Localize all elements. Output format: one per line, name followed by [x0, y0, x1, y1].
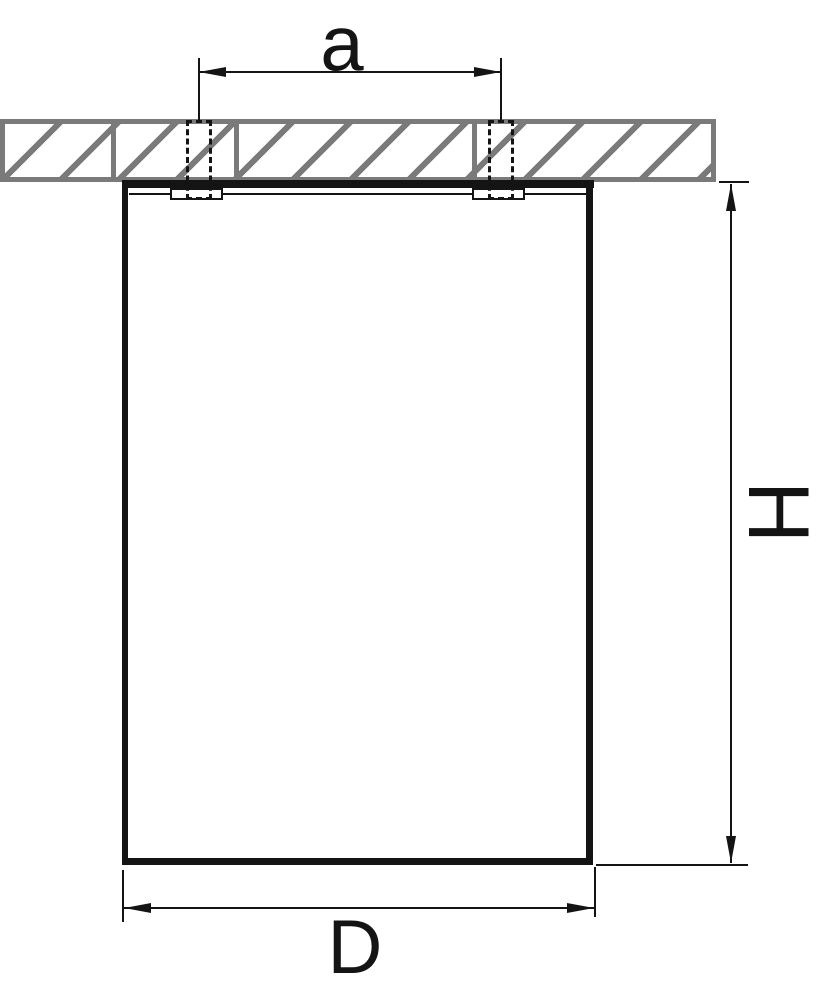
dim-d-extension-line-right [594, 867, 596, 917]
mounting-screw-right-dashed [488, 120, 514, 200]
mounting-screw-left-dashed [186, 120, 212, 200]
dim-a-arrowhead-left [199, 67, 226, 77]
dim-d-arrowhead-right [567, 903, 594, 913]
dim-h-extension-line-top [719, 181, 749, 183]
fixture-body-outline [122, 188, 593, 865]
dim-d-label: D [328, 910, 383, 986]
dim-a-label: a [320, 4, 363, 82]
dim-h-arrowhead-bottom [726, 836, 736, 863]
dim-h-label: H [735, 481, 816, 543]
dim-d-arrowhead-left [124, 903, 151, 913]
dimension-drawing: a H D [0, 0, 816, 1000]
ceiling-seam-line [234, 119, 239, 182]
ceiling-seam-line [111, 119, 116, 182]
ceiling-cross-section-hatched [0, 119, 716, 182]
dim-h-arrowhead-top [726, 184, 736, 211]
dim-h-extension-line-bottom [596, 864, 748, 866]
dim-a-arrowhead-right [474, 67, 501, 77]
ceiling-seam-line [472, 119, 477, 182]
dim-d-extension-line-left [122, 870, 124, 922]
